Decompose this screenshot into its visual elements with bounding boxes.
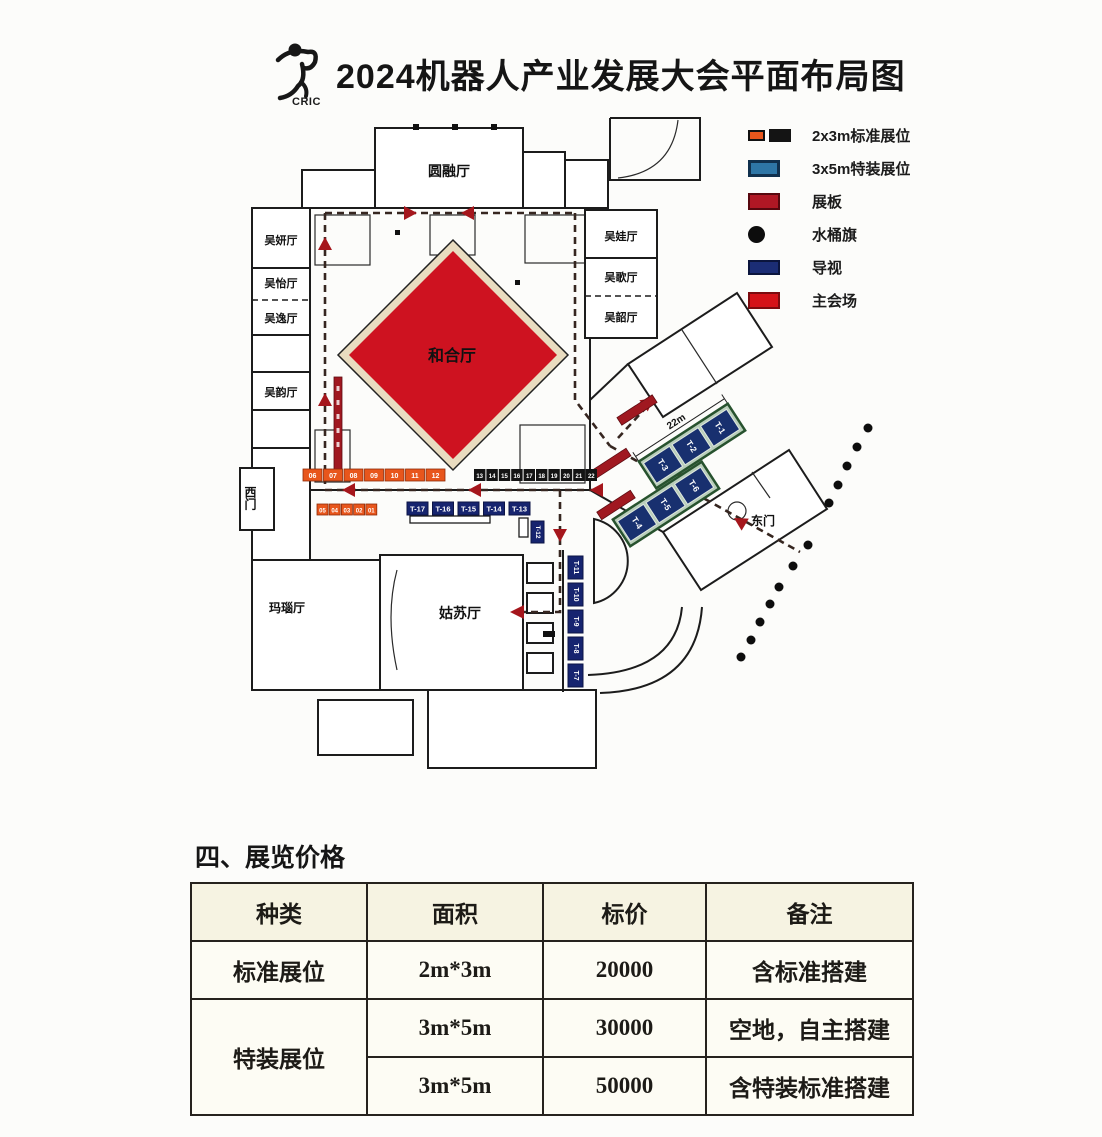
- booth-number: 10: [391, 473, 399, 480]
- standard-booth-row-orange: 06 07 08 09 10 11 12: [303, 469, 445, 481]
- booth-number: 20: [563, 474, 570, 480]
- table-row: 特装展位 3m*5m 30000 空地，自主搭建: [191, 999, 913, 1057]
- pricing-table: 种类 面积 标价 备注 标准展位 2m*3m 20000 含标准搭建 特装展位 …: [190, 882, 914, 1116]
- table-row: 标准展位 2m*3m 20000 含标准搭建: [191, 941, 913, 999]
- hall-label-gusu: 姑苏厅: [439, 605, 481, 621]
- cell-type: 标准展位: [191, 941, 367, 999]
- cell-note: 空地，自主搭建: [706, 999, 913, 1057]
- strip-dimension-label: 22m: [665, 412, 688, 432]
- table-header-row: 种类 面积 标价 备注: [191, 883, 913, 941]
- signage-label: T-11: [572, 561, 579, 575]
- hall-label-hehe: 和合厅: [428, 346, 476, 365]
- signage-label: T-7: [572, 670, 579, 680]
- cell-price: 30000: [543, 999, 706, 1057]
- booth-number: 13: [476, 474, 483, 480]
- booth-number: 18: [538, 474, 545, 480]
- booth-number: 03: [344, 509, 351, 515]
- cell-type-merged: 特装展位: [191, 999, 367, 1115]
- booth-number: 07: [329, 473, 337, 480]
- hall-label-wuyiyi: 吴逸厅: [265, 311, 298, 325]
- booth-number: 02: [356, 509, 363, 515]
- building-walls: [240, 118, 827, 768]
- cell-area: 3m*5m: [367, 999, 543, 1057]
- booth-number: 04: [331, 509, 338, 515]
- cell-area: 3m*5m: [367, 1057, 543, 1115]
- header-cell-area: 面积: [367, 883, 543, 941]
- hall-label-wuwa: 吴娃厅: [605, 229, 638, 243]
- signage-label: T-16: [435, 505, 450, 514]
- header-cell-note: 备注: [706, 883, 913, 941]
- signage-label: T-8: [572, 643, 579, 653]
- booth-number: 09: [370, 473, 378, 480]
- booth-number: 16: [514, 474, 521, 480]
- signage-label: T-12: [534, 525, 541, 538]
- signage-label: T-10: [572, 587, 579, 601]
- main-venue-hehe-hall: 和合厅: [338, 240, 568, 470]
- signage-label: T-14: [486, 505, 502, 514]
- hall-label-wuyi: 吴怡厅: [265, 276, 298, 290]
- hall-label-wuyan: 吴妍厅: [265, 233, 298, 247]
- signage-label: T-13: [512, 505, 527, 514]
- pricing-section-title: 四、展览价格: [195, 838, 345, 874]
- booth-number: 12: [432, 473, 440, 480]
- hall-label-manao: 玛瑙厅: [269, 600, 305, 615]
- booth-number: 22: [588, 474, 595, 480]
- booth-number: 17: [526, 474, 533, 480]
- booth-number: 05: [319, 509, 326, 515]
- cell-price: 20000: [543, 941, 706, 999]
- booth-number: 11: [411, 473, 419, 480]
- signage-row: T-17 T-16 T-15 T-14 T-13 T-12: [407, 502, 544, 543]
- signage-label: T-9: [572, 616, 579, 626]
- header-cell-price: 标价: [543, 883, 706, 941]
- hall-label-wushao: 吴韶厅: [605, 310, 638, 324]
- hall-label-wuyun: 吴韵厅: [265, 385, 298, 399]
- booth-number: 01: [368, 509, 375, 515]
- signage-column: T-11 T-10 T-9 T-8 T-7: [563, 550, 583, 692]
- gate-label-west: 西门: [243, 486, 257, 511]
- hall-label-wuge: 吴歌厅: [605, 270, 638, 284]
- booth-number: 06: [309, 473, 317, 480]
- booth-number: 21: [576, 474, 583, 480]
- cell-area: 2m*3m: [367, 941, 543, 999]
- hall-label-yuanrong: 圆融厅: [428, 163, 470, 179]
- booth-number: 08: [350, 473, 358, 480]
- gate-label-east: 东门: [751, 513, 775, 528]
- cell-note: 含特装标准搭建: [706, 1057, 913, 1115]
- booth-number: 19: [551, 474, 558, 480]
- header-cell-type: 种类: [191, 883, 367, 941]
- standard-booth-row-black: 13 14 15 16 17 18 19 20 21 22: [474, 469, 597, 481]
- booth-number: 14: [489, 474, 496, 480]
- cell-note: 含标准搭建: [706, 941, 913, 999]
- standard-booth-row-orange-2: 05 04 03 02 01: [317, 504, 377, 515]
- signage-label: T-17: [410, 505, 425, 514]
- floor-plan: 和合厅: [0, 0, 1102, 820]
- cell-price: 50000: [543, 1057, 706, 1115]
- signage-label: T-15: [461, 505, 476, 514]
- booth-number: 15: [501, 474, 508, 480]
